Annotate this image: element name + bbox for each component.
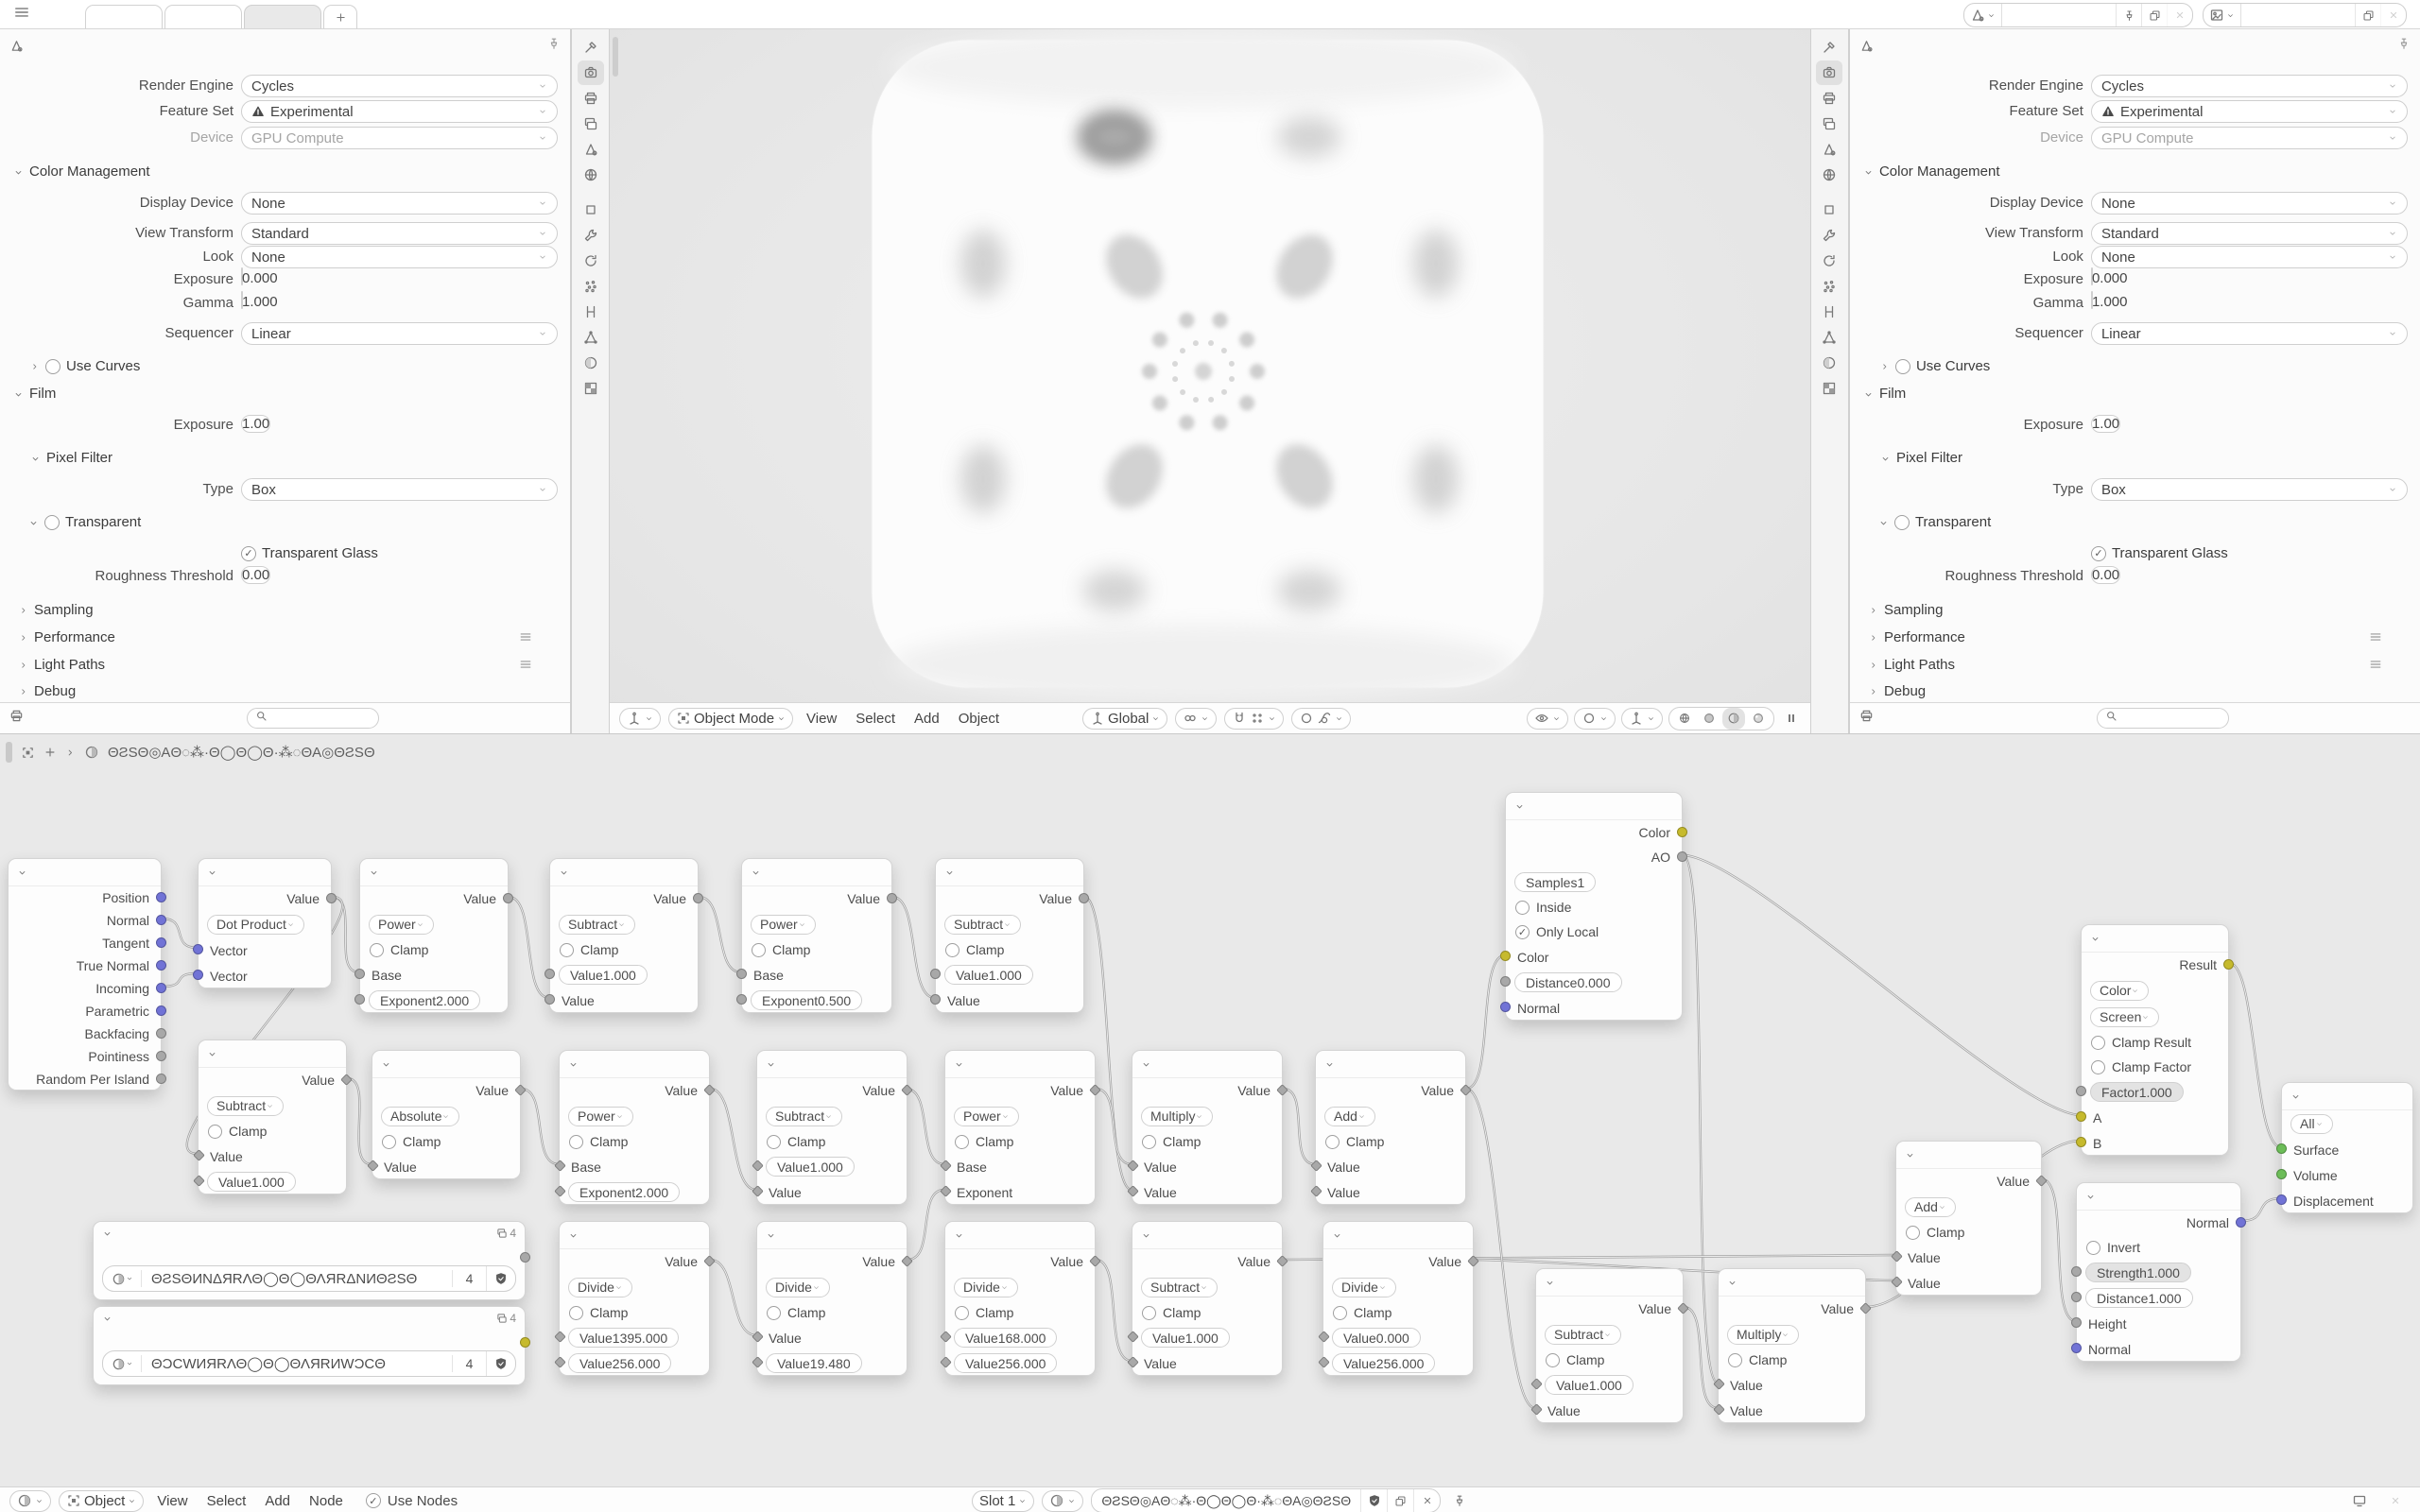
operation-dropdown[interactable]: Subtract [559, 915, 635, 935]
prop-use-curves[interactable]: Use Curves [1850, 354, 2420, 379]
warning-icon [2101, 105, 2115, 118]
properties-tabs-left [571, 29, 610, 733]
checkbox-clamp[interactable]: Clamp [560, 1129, 709, 1154]
operation-dropdown[interactable]: Dot Product [207, 915, 304, 935]
collapse-icon[interactable] [17, 868, 27, 878]
prop-view-transform: View TransformStandard [0, 221, 570, 246]
shading-wireframe-icon[interactable] [1673, 708, 1696, 730]
filter-icon[interactable] [9, 709, 24, 728]
pin-icon[interactable] [1448, 1490, 1471, 1512]
prop-film[interactable]: Film [0, 382, 570, 406]
prop-device: DeviceGPU Compute [0, 126, 570, 150]
prop-color-management[interactable]: Color Management [0, 160, 570, 184]
value-field-value[interactable]: Value256.000 [954, 1353, 1057, 1373]
fake-user-shield-icon[interactable] [487, 1351, 515, 1376]
collapse-icon[interactable] [954, 1059, 964, 1070]
fake-user-shield-icon[interactable] [1360, 1489, 1387, 1512]
close-icon[interactable] [2380, 4, 2406, 26]
node-divide-1[interactable]: ValueDivideClampValue1395.000Value256.00… [559, 1221, 710, 1376]
node-subtract-5[interactable]: ValueSubtractClampValue1.000Value [1132, 1221, 1283, 1376]
workspace-tab-3[interactable] [244, 5, 321, 28]
input-socket[interactable] [544, 969, 555, 979]
checkbox-clamp[interactable]: Clamp [372, 1129, 520, 1154]
image-name[interactable]: ΘƧSΘИNΔЯRΛΘ◯Θ◯ΘΛЯRΔNИΘƧSΘ [141, 1270, 453, 1287]
operation-dropdown[interactable]: Subtract [1141, 1278, 1218, 1297]
collapse-icon[interactable] [1905, 1150, 1915, 1160]
checkbox-clamp[interactable]: Clamp [360, 937, 508, 962]
properties-tab-object-icon[interactable] [1816, 198, 1842, 222]
image-icon[interactable] [2204, 4, 2241, 26]
close-icon[interactable] [2384, 1490, 2407, 1512]
prop-exposure: Exposure1.00 [0, 413, 570, 438]
collapse-icon[interactable] [1324, 1059, 1335, 1070]
node-divide-2[interactable]: ValueDivideClampValueValue19.480 [756, 1221, 907, 1376]
properties-tabs-right [1810, 29, 1849, 733]
image-name-input[interactable] [2241, 4, 2355, 26]
search-icon [255, 710, 268, 727]
prop-gamma: Gamma1.000 [0, 291, 570, 316]
properties-tab-world-icon[interactable] [578, 163, 604, 187]
value-field-value[interactable]: Value1.000 [944, 965, 1033, 985]
breadcrumb: ΘƧSΘ◎AΘ◌⁂·Θ◯Θ◯Θ·⁂◌ΘA◎ΘƧSΘ [6, 742, 375, 763]
node-power-2[interactable]: ValuePowerClampBaseExponent0.500 [741, 858, 892, 1013]
viewport-header: Object Mode View Select Add Object Globa… [610, 702, 1810, 733]
properties-editor-icon[interactable] [1859, 39, 1874, 58]
pin-icon[interactable] [2116, 4, 2141, 26]
node-add-1[interactable]: ValueAddClampValueValue [1315, 1050, 1466, 1205]
collapse-icon[interactable] [207, 1049, 217, 1059]
value-field-distance[interactable]: Distance1.000 [2085, 1288, 2193, 1308]
collapse-icon[interactable] [369, 868, 379, 878]
collapse-icon[interactable] [207, 868, 217, 878]
properties-tab-output-icon[interactable] [578, 86, 604, 111]
value-field-exponent[interactable]: Exponent0.500 [751, 990, 862, 1010]
topbar [0, 0, 2420, 29]
warning-icon [251, 105, 265, 118]
slot-dropdown[interactable]: Slot 1 [972, 1490, 1034, 1512]
orientation-dropdown[interactable]: Global [1082, 708, 1167, 730]
snap-dropdown[interactable] [1224, 708, 1284, 730]
node-power-4[interactable]: ValuePowerClampBaseExponent [944, 1050, 1096, 1205]
collapse-icon[interactable] [102, 1314, 112, 1324]
output-socket[interactable] [520, 1252, 530, 1263]
collapse-icon[interactable] [1727, 1278, 1737, 1288]
search-icon [2105, 710, 2117, 727]
checkbox-clamp[interactable]: Clamp [1132, 1300, 1282, 1325]
material-preview-icon[interactable] [1042, 1490, 1083, 1512]
properties-tab-view-layer-icon[interactable] [1816, 112, 1842, 136]
value-field-value[interactable]: Value1395.000 [568, 1328, 679, 1348]
menu-node[interactable]: Node [303, 1493, 349, 1509]
input-socket[interactable] [736, 994, 747, 1005]
checkbox-clamp[interactable]: Clamp [1316, 1129, 1465, 1154]
shading-solid-icon[interactable] [1698, 708, 1720, 730]
input-socket[interactable] [930, 969, 941, 979]
operation-dropdown[interactable]: Color [2090, 981, 2149, 1001]
checkbox-inside[interactable]: Inside [1506, 895, 1682, 919]
menu-view[interactable]: View [151, 1493, 193, 1509]
panel-menu-icon [2369, 630, 2382, 647]
filter-icon[interactable] [1859, 709, 1874, 728]
checkbox-clamp[interactable]: Clamp [742, 937, 891, 962]
checkbox-clamp[interactable]: Clamp [936, 937, 1083, 962]
node-power-3[interactable]: ValuePowerClampBaseExponent2.000 [559, 1050, 710, 1205]
image-name[interactable]: ΘƆCWИЯRΛΘ◯Θ◯ΘΛЯRИWƆCΘ [141, 1355, 453, 1372]
prop-feature-set: Feature SetExperimental [1850, 99, 2420, 124]
collapse-icon[interactable] [2085, 1192, 2096, 1202]
checkbox-clamp[interactable]: Clamp [1323, 1300, 1473, 1325]
operation-dropdown[interactable]: Add [1905, 1197, 1956, 1217]
prop-render-engine: Render EngineCycles [1850, 74, 2420, 98]
prop-transparent-glass[interactable]: ✓Transparent Glass [1850, 541, 2420, 566]
value-field-exponent[interactable]: Exponent2.000 [369, 990, 480, 1010]
material-datablock: ΘƧSΘ◎AΘ◌⁂·Θ◯Θ◯Θ·⁂◌ΘA◎ΘƧSΘ [1091, 1488, 1441, 1512]
node-add-2[interactable]: ValueAddClampValueValue [1895, 1141, 2042, 1296]
node-geometry[interactable]: PositionNormalTangentTrue NormalIncoming… [8, 858, 162, 1091]
collapse-icon[interactable] [1141, 1059, 1151, 1070]
workspace-tab-1[interactable] [85, 5, 163, 28]
properties-tab-output-icon[interactable] [1816, 86, 1842, 111]
value-field-factor[interactable]: Factor1.000 [2090, 1082, 2184, 1102]
checkbox-invert[interactable]: Invert [2077, 1235, 2240, 1260]
node-dot-product[interactable]: ValueDot ProductVectorVector [198, 858, 332, 988]
prop-display-device: Display DeviceNone [1850, 191, 2420, 215]
operation-dropdown[interactable]: Multiply [1141, 1107, 1213, 1126]
menu-object[interactable]: Object [953, 711, 1005, 727]
operation-dropdown[interactable]: Multiply [1727, 1325, 1799, 1345]
image-datablock: ΘƧSΘИNΔЯRΛΘ◯Θ◯ΘΛЯRΔNИΘƧSΘ4 [102, 1265, 516, 1292]
prop-roughness-threshold: Roughness Threshold0.00 [0, 564, 570, 589]
operation-dropdown[interactable]: Power [954, 1107, 1019, 1126]
operation-dropdown[interactable]: Divide [766, 1278, 830, 1297]
node-bump[interactable]: NormalInvertStrength1.000Distance1.000He… [2076, 1182, 2241, 1362]
properties-tab-constraints-icon[interactable] [1816, 300, 1842, 324]
properties-editor-right: Render EngineCyclesFeature SetExperiment… [1849, 29, 2420, 733]
properties-tab-material-icon[interactable] [1816, 351, 1842, 375]
prop-transparent-glass[interactable]: ✓Transparent Glass [0, 541, 570, 566]
operation-dropdown[interactable]: Divide [1332, 1278, 1396, 1297]
value-field-value[interactable]: Value168.000 [954, 1328, 1057, 1348]
add-icon[interactable] [43, 746, 57, 759]
pivot-dropdown[interactable] [1175, 708, 1217, 730]
prop-transparent[interactable]: Transparent [1850, 510, 2420, 535]
input-socket[interactable] [354, 994, 365, 1005]
image-users-badge: 4 [496, 1227, 516, 1240]
prop-pixel-filter[interactable]: Pixel Filter [0, 446, 570, 471]
checkbox-clamp[interactable]: Clamp [199, 1119, 346, 1143]
collapse-icon[interactable] [2090, 934, 2100, 944]
node-divide-3[interactable]: ValueDivideClampValue168.000Value256.000 [944, 1221, 1096, 1376]
properties-tab-particles-icon[interactable] [578, 274, 604, 299]
close-icon[interactable] [2167, 4, 2192, 26]
blender-window: Render EngineCyclesFeature SetExperiment… [0, 0, 2420, 1512]
add-workspace-button[interactable] [323, 5, 357, 28]
scene-selector [1963, 3, 2193, 27]
scene-name-input[interactable] [2002, 4, 2116, 26]
collapse-icon[interactable] [102, 1228, 112, 1239]
checkbox-only-local[interactable]: ✓Only Local [1506, 919, 1682, 944]
operation-dropdown[interactable]: All [2290, 1114, 2333, 1134]
value-field-value[interactable]: Value0.000 [1332, 1328, 1421, 1348]
properties-footer [1850, 702, 2420, 733]
fake-user-shield-icon[interactable] [487, 1266, 515, 1291]
copy-icon[interactable] [2141, 4, 2167, 26]
shading-material-icon[interactable] [1722, 708, 1745, 730]
properties-tab-modifiers-icon[interactable] [578, 223, 604, 248]
checkbox-clamp[interactable]: Clamp [1132, 1129, 1282, 1154]
canvas-scrollbar[interactable] [6, 742, 12, 763]
properties-footer [0, 702, 570, 733]
prop-light-paths[interactable]: Light Paths [0, 653, 570, 678]
overlays-dropdown[interactable] [1574, 708, 1616, 730]
proportional-editing-dropdown[interactable] [1291, 708, 1351, 730]
workspace-tabs [85, 0, 357, 28]
node-image-1[interactable]: 4ΘƧSΘИNΔЯRΛΘ◯Θ◯ΘΛЯRΔNИΘƧSΘ4 [93, 1221, 526, 1300]
prop-use-curves[interactable]: Use Curves [0, 354, 570, 379]
node-subtract-4[interactable]: ValueSubtractClampValue1.000Value [756, 1050, 907, 1205]
prop-debug[interactable]: Debug [0, 679, 570, 703]
operation-dropdown[interactable]: Subtract [1545, 1325, 1621, 1345]
pin-icon[interactable] [547, 37, 561, 55]
pause-icon[interactable] [1780, 708, 1803, 730]
properties-tab-scene-icon[interactable] [1816, 137, 1842, 162]
image-selector [2203, 3, 2407, 27]
properties-tab-world-icon[interactable] [1816, 163, 1842, 187]
checkbox-clamp-result[interactable]: Clamp Result [2082, 1030, 2228, 1055]
menu-add[interactable]: Add [259, 1493, 296, 1509]
checkbox-clamp[interactable]: Clamp [945, 1300, 1095, 1325]
operation-dropdown[interactable]: Subtract [207, 1096, 284, 1116]
checkbox-clamp[interactable]: Clamp [550, 937, 698, 962]
operation-dropdown[interactable]: Divide [568, 1278, 632, 1297]
value-field-value[interactable]: Value1.000 [1545, 1375, 1633, 1395]
properties-tab-render-icon[interactable] [1816, 60, 1842, 85]
node-subtract-1[interactable]: ValueSubtractClampValue1.000Value [549, 858, 699, 1013]
value-field-value[interactable]: Value1.000 [1141, 1328, 1230, 1348]
rendered-object [610, 29, 1810, 703]
checkbox-clamp[interactable]: Clamp [1536, 1348, 1683, 1372]
properties-tab-scene-icon[interactable] [578, 137, 604, 162]
input-socket[interactable] [1500, 976, 1511, 987]
checkbox-clamp[interactable]: Clamp [1719, 1348, 1865, 1372]
properties-tab-render-icon[interactable] [578, 60, 604, 85]
node-subtract-3[interactable]: ValueSubtractClampValueValue1.000 [198, 1039, 347, 1194]
properties-tab-modifiers-icon[interactable] [1816, 223, 1842, 248]
operation-dropdown[interactable]: Power [369, 915, 434, 935]
node-image-2[interactable]: 4ΘƆCWИЯRΛΘ◯Θ◯ΘΛЯRИWƆCΘ4 [93, 1306, 526, 1385]
input-socket[interactable] [2076, 1086, 2086, 1096]
operation-dropdown[interactable]: Subtract [944, 915, 1021, 935]
pin-icon[interactable] [2397, 37, 2411, 55]
operation-dropdown[interactable]: Add [1324, 1107, 1375, 1126]
node-editor-header: Object View Select Add Node ✓Use Nodes S… [0, 1486, 2420, 1512]
prop-light-paths[interactable]: Light Paths [1850, 653, 2420, 678]
prop-type: TypeBox [1850, 477, 2420, 502]
collapse-icon[interactable] [766, 1230, 776, 1241]
checkbox-clamp-factor[interactable]: Clamp Factor [2082, 1055, 2228, 1079]
value-field-value[interactable]: Value1.000 [207, 1172, 296, 1192]
node-subtract-6[interactable]: ValueSubtractClampValue1.000Value [1535, 1268, 1684, 1423]
gizmos-dropdown[interactable] [1621, 708, 1663, 730]
prop-gamma: Gamma1.000 [1850, 291, 2420, 316]
menu-add[interactable]: Add [908, 711, 945, 727]
node-editor-canvas[interactable]: PositionNormalTangentTrue NormalIncoming… [0, 734, 2420, 1486]
mode-dropdown[interactable]: Object Mode [668, 708, 793, 730]
operation-dropdown[interactable]: Power [751, 915, 816, 935]
copy-icon[interactable] [2355, 4, 2380, 26]
prop-sampling[interactable]: Sampling [0, 598, 570, 623]
properties-tab-tool-icon[interactable] [1816, 35, 1842, 60]
value-field-value[interactable]: Value19.480 [766, 1353, 862, 1373]
node-multiply-1[interactable]: ValueMultiplyClampValueValue [1132, 1050, 1283, 1205]
collapse-icon[interactable] [1332, 1230, 1342, 1241]
image-preview-icon[interactable] [103, 1266, 141, 1291]
menu-select[interactable]: Select [850, 711, 901, 727]
prop-look: LookNone [0, 245, 570, 269]
value-field-strength[interactable]: Strength1.000 [2085, 1263, 2191, 1282]
properties-tab-tool-icon[interactable] [578, 35, 604, 60]
properties-tab-view-layer-icon[interactable] [578, 112, 604, 136]
collapse-icon[interactable] [954, 1230, 964, 1241]
prop-pixel-filter[interactable]: Pixel Filter [1850, 446, 2420, 471]
properties-tab-object-icon[interactable] [578, 198, 604, 222]
shader-type-dropdown[interactable]: Object [59, 1490, 144, 1512]
properties-tab-material-icon[interactable] [578, 351, 604, 375]
operation-dropdown[interactable]: Subtract [766, 1107, 842, 1126]
value-field-samples[interactable]: Samples1 [1514, 872, 1596, 892]
prop-exposure: Exposure0.000 [1850, 267, 2420, 292]
input-socket[interactable] [2071, 1266, 2082, 1277]
monitor-icon[interactable] [2348, 1490, 2371, 1512]
image-preview-icon[interactable] [103, 1351, 141, 1376]
prop-feature-set: Feature SetExperimental [0, 99, 570, 124]
input-socket[interactable] [2071, 1292, 2082, 1302]
material-name[interactable]: ΘƧSΘ◎AΘ◌⁂·Θ◯Θ◯Θ·⁂◌ΘA◎ΘƧSΘ [1092, 1493, 1360, 1509]
checkbox-clamp[interactable]: Clamp [1896, 1220, 2041, 1245]
workspace-tab-2[interactable] [164, 5, 242, 28]
prop-roughness-threshold: Roughness Threshold0.00 [1850, 564, 2420, 589]
node-subtract-2[interactable]: ValueSubtractClampValue1.000Value [935, 858, 1084, 1013]
prop-sampling[interactable]: Sampling [1850, 598, 2420, 623]
prop-render-engine: Render EngineCycles [0, 74, 570, 98]
menu-icon[interactable] [13, 4, 30, 26]
output-socket[interactable] [520, 1337, 530, 1348]
checkbox-clamp[interactable]: Clamp [757, 1129, 907, 1154]
prop-exposure: Exposure0.000 [0, 267, 570, 292]
collapse-icon[interactable] [766, 1059, 776, 1070]
operation-dropdown[interactable]: Power [568, 1107, 633, 1126]
prop-color-management[interactable]: Color Management [1850, 160, 2420, 184]
scene-icon[interactable] [1964, 4, 2002, 26]
properties-tab-particles-icon[interactable] [1816, 274, 1842, 299]
prop-exposure: Exposure1.00 [1850, 413, 2420, 438]
prop-display-device: Display DeviceNone [0, 191, 570, 215]
shading-rendered-icon[interactable] [1747, 708, 1770, 730]
prop-sequencer: SequencerLinear [1850, 321, 2420, 346]
properties-tab-object-data-icon[interactable] [578, 325, 604, 350]
close-icon[interactable] [1413, 1489, 1440, 1512]
shader-node-editor: PositionNormalTangentTrue NormalIncoming… [0, 733, 2420, 1512]
properties-tab-physics-icon[interactable] [578, 249, 604, 273]
node-power-1[interactable]: ValuePowerClampBaseExponent2.000 [359, 858, 509, 1013]
collapse-icon[interactable] [751, 868, 761, 878]
value-field-distance[interactable]: Distance0.000 [1514, 972, 1622, 992]
object-icon [21, 746, 35, 760]
node-ambient-occlusion[interactable]: ColorAOSamples1Inside✓Only LocalColorDis… [1505, 792, 1683, 1021]
material-sphere-icon [84, 745, 99, 760]
prop-performance[interactable]: Performance [0, 626, 570, 650]
prop-view-transform: View TransformStandard [1850, 221, 2420, 246]
prop-type: TypeBox [0, 477, 570, 502]
value-field-exponent[interactable]: Exponent2.000 [568, 1182, 680, 1202]
collapse-icon[interactable] [1514, 801, 1525, 812]
prop-look: LookNone [1850, 245, 2420, 269]
collapse-icon[interactable] [1545, 1278, 1555, 1288]
prop-performance[interactable]: Performance [1850, 626, 2420, 650]
viewport-3d[interactable]: Object Mode View Select Add Object Globa… [610, 29, 1810, 733]
operation-dropdown[interactable]: Divide [954, 1278, 1018, 1297]
search-input[interactable] [247, 708, 379, 729]
value-field-value[interactable]: Value1.000 [559, 965, 648, 985]
editor-type-button[interactable] [619, 708, 661, 730]
operation-dropdown[interactable]: Absolute [381, 1107, 459, 1126]
panel-menu-icon [519, 630, 532, 647]
editor-type-button[interactable] [9, 1490, 51, 1512]
image-datablock: ΘƆCWИЯRΛΘ◯Θ◯ΘΛЯRИWƆCΘ4 [102, 1350, 516, 1377]
checkbox-clamp[interactable]: Clamp [560, 1300, 709, 1325]
collapse-icon[interactable] [2290, 1091, 2301, 1102]
node-multiply-2[interactable]: ValueMultiplyClampValueValue [1718, 1268, 1866, 1423]
value-field-value[interactable]: Value1.000 [766, 1157, 855, 1177]
search-input[interactable] [2097, 708, 2229, 729]
use-nodes-checkbox[interactable]: ✓Use Nodes [366, 1493, 458, 1509]
node-material-output[interactable]: AllSurfaceVolumeDisplacement [2281, 1082, 2413, 1213]
properties-tab-constraints-icon[interactable] [578, 300, 604, 324]
node-divide-4[interactable]: ValueDivideClampValue0.000Value256.000 [1322, 1221, 1474, 1376]
visibility-dropdown[interactable] [1527, 708, 1568, 730]
node-tree-path: ΘƧSΘ◎AΘ◌⁂·Θ◯Θ◯Θ·⁂◌ΘA◎ΘƧSΘ [108, 744, 375, 761]
prop-debug[interactable]: Debug [1850, 679, 2420, 703]
node-mix-color[interactable]: ResultColorScreenClamp ResultClamp Facto… [2081, 924, 2229, 1156]
node-absolute[interactable]: ValueAbsoluteClampValue [372, 1050, 521, 1179]
prop-transparent[interactable]: Transparent [0, 510, 570, 535]
users-count[interactable]: 4 [453, 1266, 487, 1291]
collapse-icon[interactable] [568, 1230, 579, 1241]
collapse-icon[interactable] [568, 1059, 579, 1070]
collapse-icon[interactable] [559, 868, 569, 878]
properties-tab-physics-icon[interactable] [1816, 249, 1842, 273]
collapse-icon[interactable] [944, 868, 955, 878]
viewport-scrollbar[interactable] [613, 37, 618, 77]
checkbox-clamp[interactable]: Clamp [757, 1300, 907, 1325]
properties-editor-icon[interactable] [9, 39, 24, 58]
operation-dropdown[interactable]: Screen [2090, 1007, 2159, 1027]
users-count[interactable]: 4 [453, 1351, 487, 1376]
properties-tab-object-data-icon[interactable] [1816, 325, 1842, 350]
value-field-value[interactable]: Value256.000 [1332, 1353, 1435, 1373]
collapse-icon[interactable] [381, 1059, 391, 1070]
checkbox-clamp[interactable]: Clamp [945, 1129, 1095, 1154]
properties-tab-texture-icon[interactable] [578, 376, 604, 401]
value-field-value[interactable]: Value256.000 [568, 1353, 671, 1373]
collapse-icon[interactable] [1141, 1230, 1151, 1241]
menu-select[interactable]: Select [201, 1493, 252, 1509]
copy-icon[interactable] [1387, 1489, 1413, 1512]
prop-film[interactable]: Film [1850, 382, 2420, 406]
properties-tab-texture-icon[interactable] [1816, 376, 1842, 401]
menu-view[interactable]: View [801, 711, 842, 727]
shading-mode-buttons [1668, 707, 1774, 730]
